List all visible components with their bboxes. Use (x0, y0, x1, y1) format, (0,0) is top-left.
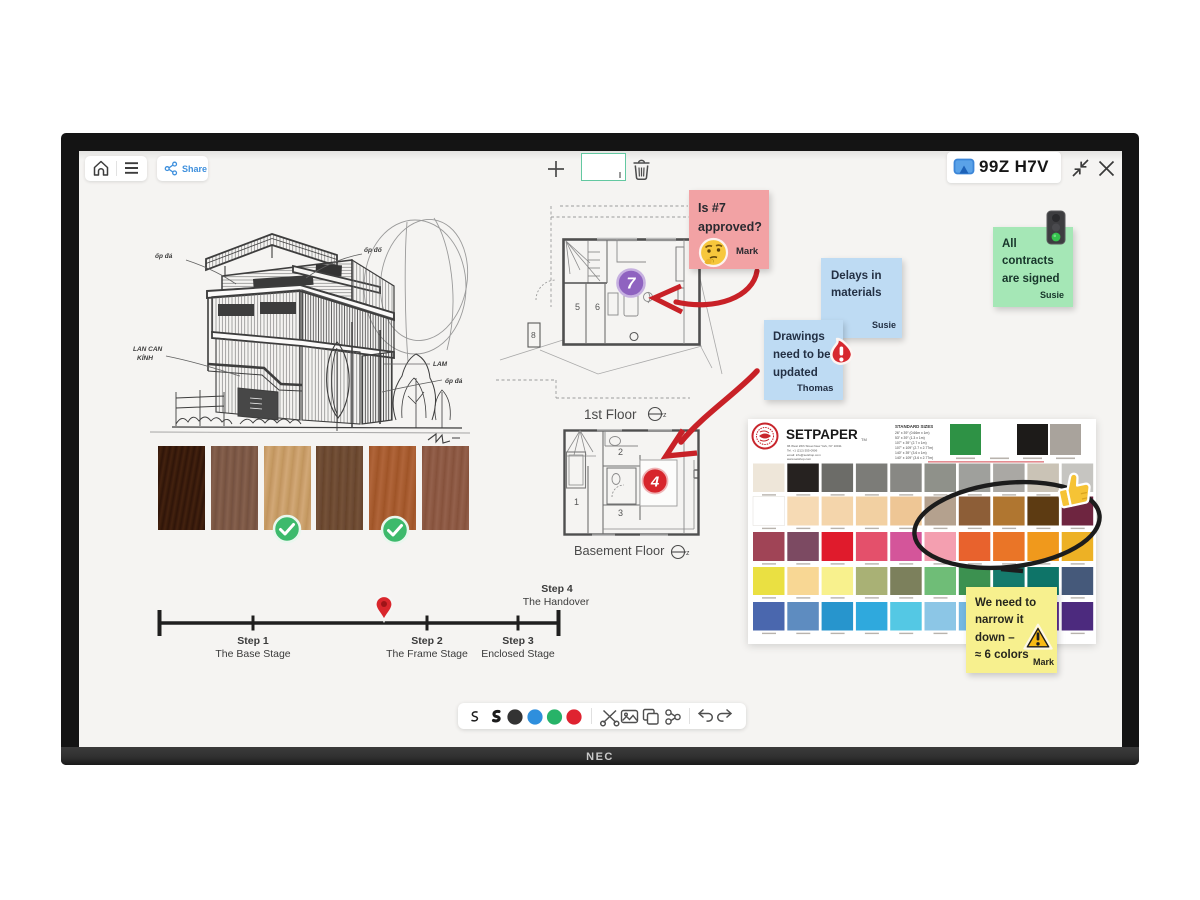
svg-text:ốp đố: ốp đố (364, 246, 383, 254)
svg-text:www.setshop.com: www.setshop.com (787, 457, 812, 461)
svg-text:26" x 39" (0.66m x 1m): 26" x 39" (0.66m x 1m) (895, 431, 929, 435)
svg-text:z: z (686, 550, 690, 557)
svg-text:5: 5 (575, 302, 580, 312)
svg-text:1: 1 (574, 497, 579, 507)
svg-text:140" x 109" (3.6 x 2.77m): 140" x 109" (3.6 x 2.77m) (895, 456, 933, 460)
svg-text:96 West 26th Street New York,: 96 West 26th Street New York, NY 10011 (787, 444, 842, 448)
svg-text:53" x 39" (1.3 x 1m): 53" x 39" (1.3 x 1m) (895, 436, 925, 440)
svg-text:6: 6 (595, 302, 600, 312)
svg-text:LAN CAN: LAN CAN (133, 346, 163, 353)
svg-text:7: 7 (627, 276, 637, 293)
svg-text:LAM: LAM (433, 361, 448, 368)
svg-text:8: 8 (531, 330, 536, 340)
svg-text:TM: TM (861, 437, 867, 442)
svg-text:107" x 39" (2.7 x 1m): 107" x 39" (2.7 x 1m) (895, 441, 927, 445)
svg-text:107" x 109" (2.7 x 2.77m): 107" x 109" (2.7 x 2.77m) (895, 446, 933, 450)
svg-text:STANDARD SIZES: STANDARD SIZES (895, 424, 933, 429)
svg-text:ốp đá: ốp đá (445, 377, 463, 385)
svg-text:The Handover: The Handover (523, 596, 590, 608)
svg-text:4: 4 (650, 474, 660, 491)
svg-text:Step 4: Step 4 (541, 583, 573, 595)
svg-text:email: info@setshop.com: email: info@setshop.com (787, 453, 821, 457)
svg-text:Step 1: Step 1 (237, 635, 269, 647)
svg-text:2: 2 (618, 447, 623, 457)
svg-text:140" x 39" (3.6 x 1m): 140" x 39" (3.6 x 1m) (895, 451, 927, 455)
svg-text:The Base Stage: The Base Stage (215, 648, 290, 660)
svg-text:The Frame Stage: The Frame Stage (386, 648, 468, 660)
svg-text:Step 3: Step 3 (502, 635, 534, 647)
svg-text:1st Floor: 1st Floor (584, 407, 637, 422)
svg-text:Tel. +1 (212) 555-0906: Tel. +1 (212) 555-0906 (787, 448, 818, 452)
svg-text:SETPAPER: SETPAPER (786, 427, 858, 442)
svg-text:Step 2: Step 2 (411, 635, 443, 647)
svg-text:3: 3 (618, 508, 623, 518)
svg-text:ốp đá: ốp đá (155, 252, 173, 260)
svg-text:Basement Floor: Basement Floor (574, 543, 665, 558)
svg-text:KÍNH: KÍNH (137, 353, 153, 362)
svg-text:Enclosed Stage: Enclosed Stage (481, 648, 555, 660)
